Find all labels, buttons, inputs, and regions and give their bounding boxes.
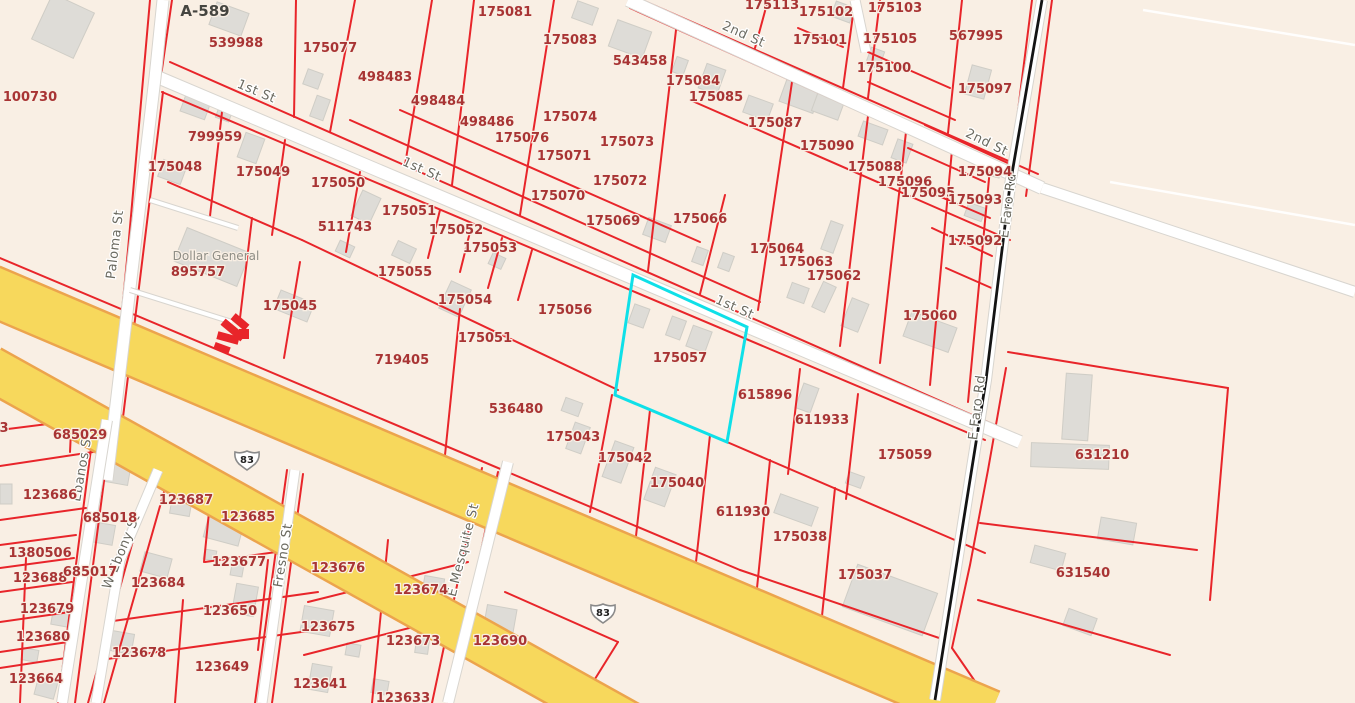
parcel-label[interactable]: 175053 <box>463 241 517 256</box>
parcel-label[interactable]: 175042 <box>598 451 652 466</box>
parcel-label[interactable]: 175073 <box>600 135 654 150</box>
parcel-label[interactable]: 611933 <box>795 413 849 428</box>
parcel-label[interactable]: 175113 <box>745 0 799 13</box>
parcel-label[interactable]: 175100 <box>857 61 911 76</box>
parcel-label[interactable]: 175069 <box>586 214 640 229</box>
parcel-label[interactable]: 123679 <box>20 602 74 617</box>
parcel-label[interactable]: 175077 <box>303 41 357 56</box>
parcel-label[interactable]: 123677 <box>212 555 266 570</box>
label-a-589: A-589 <box>180 2 229 20</box>
parcel-label[interactable]: 498483 <box>358 70 412 85</box>
label-dollar-general: Dollar General <box>173 249 260 263</box>
parcel-label[interactable]: 175063 <box>779 255 833 270</box>
parcel-label[interactable]: 123687 <box>159 493 213 508</box>
building-footprint <box>21 648 39 663</box>
parcel-label[interactable]: 123650 <box>203 604 257 619</box>
parcel-label[interactable]: 175040 <box>650 476 704 491</box>
shield-number: 83 <box>240 455 254 466</box>
parcel-label[interactable]: 685029 <box>53 428 107 443</box>
parcel-label[interactable]: 123686 <box>23 488 77 503</box>
parcel-label[interactable]: 685018 <box>83 511 137 526</box>
parcel-label[interactable]: 175060 <box>903 309 957 324</box>
parcel-label[interactable]: 175055 <box>378 265 432 280</box>
parcel-label[interactable]: 175045 <box>263 299 317 314</box>
parcel-label[interactable]: 123664 <box>9 672 63 687</box>
parcel-label[interactable]: 3 <box>0 421 9 436</box>
parcel-label[interactable]: 175090 <box>800 139 854 154</box>
parcel-label[interactable]: 631210 <box>1075 448 1129 463</box>
parcel-label[interactable]: 123675 <box>301 620 355 635</box>
parcel-label[interactable]: 175051 <box>458 331 512 346</box>
parcel-label[interactable]: 123684 <box>131 576 185 591</box>
parcel-label[interactable]: 175092 <box>948 234 1002 249</box>
parcel-label[interactable]: 175097 <box>958 82 1012 97</box>
parcel-label[interactable]: 175050 <box>311 176 365 191</box>
parcel-label[interactable]: 123690 <box>473 634 527 649</box>
building-footprint <box>0 484 12 504</box>
shield-number: 83 <box>596 608 610 619</box>
parcel-label[interactable]: 615896 <box>738 388 792 403</box>
parcel-label[interactable]: 175093 <box>948 193 1002 208</box>
parcel-label[interactable]: 175052 <box>429 223 483 238</box>
parcel-label[interactable]: 123680 <box>16 630 70 645</box>
parcel-label[interactable]: 175074 <box>543 110 597 125</box>
building-footprint <box>1062 373 1093 441</box>
parcel-label[interactable]: 175081 <box>478 5 532 20</box>
parcel-label[interactable]: 123676 <box>311 561 365 576</box>
parcel-label[interactable]: 175102 <box>799 5 853 20</box>
red-annotation-mark <box>239 329 249 339</box>
parcel-label[interactable]: 539988 <box>209 36 263 51</box>
parcel-label[interactable]: 175049 <box>236 165 290 180</box>
parcel-label[interactable]: 175101 <box>793 33 847 48</box>
parcel-label[interactable]: 175054 <box>438 293 492 308</box>
parcel-label[interactable]: 498484 <box>411 94 465 109</box>
parcel-label[interactable]: 175062 <box>807 269 861 284</box>
parcel-label[interactable]: 175072 <box>593 174 647 189</box>
parcel-label[interactable]: 175105 <box>863 32 917 47</box>
parcel-label[interactable]: 123633 <box>376 691 430 703</box>
parcel-label[interactable]: 611930 <box>716 505 770 520</box>
parcel-label[interactable]: 123641 <box>293 677 347 692</box>
parcel-label[interactable]: 175094 <box>958 165 1012 180</box>
parcel-label[interactable]: 123649 <box>195 660 249 675</box>
parcel-label[interactable]: 175066 <box>673 212 727 227</box>
parcel-label[interactable]: 175076 <box>495 131 549 146</box>
parcel-label[interactable]: 175087 <box>748 116 802 131</box>
parcel-label[interactable]: 175088 <box>848 160 902 175</box>
map-canvas[interactable]: 83831st St1st St1st St2nd St2nd StPaloma… <box>0 0 1355 703</box>
parcel-label[interactable]: 685017 <box>63 565 117 580</box>
parcel-label[interactable]: 175051 <box>382 204 436 219</box>
parcel-label[interactable]: 567995 <box>949 29 1003 44</box>
parcel-label[interactable]: 895757 <box>171 265 225 280</box>
parcel-label[interactable]: 175084 <box>666 74 720 89</box>
building-footprint <box>345 643 361 657</box>
parcel-label[interactable]: 175056 <box>538 303 592 318</box>
parcel-label[interactable]: 799959 <box>188 130 242 145</box>
parcel-label[interactable]: 175059 <box>878 448 932 463</box>
parcel-label[interactable]: 175038 <box>773 530 827 545</box>
parcel-label[interactable]: 123685 <box>221 510 275 525</box>
parcel-label[interactable]: 123688 <box>13 571 67 586</box>
parcel-label[interactable]: 175071 <box>537 149 591 164</box>
parcel-label[interactable]: 123678 <box>112 646 166 661</box>
parcel-label[interactable]: 1380506 <box>8 546 71 561</box>
parcel-label[interactable]: 175083 <box>543 33 597 48</box>
parcel-label[interactable]: 511743 <box>318 220 372 235</box>
parcel-label[interactable]: 175043 <box>546 430 600 445</box>
parcel-label[interactable]: 543458 <box>613 54 667 69</box>
parcel-label[interactable]: 100730 <box>3 90 57 105</box>
parcel-label[interactable]: 536480 <box>489 402 543 417</box>
parcel-label[interactable]: 175085 <box>689 90 743 105</box>
parcel-label[interactable]: 498486 <box>460 115 514 130</box>
parcel-label[interactable]: 175103 <box>868 1 922 16</box>
parcel-label[interactable]: 175037 <box>838 568 892 583</box>
parcel-label[interactable]: 175057 <box>653 351 707 366</box>
parcel-label[interactable]: 175070 <box>531 189 585 204</box>
parcel-label[interactable]: 631540 <box>1056 566 1110 581</box>
parcel-label[interactable]: 123673 <box>386 634 440 649</box>
parcel-label[interactable]: 123674 <box>394 583 448 598</box>
parcel-label[interactable]: 719405 <box>375 353 429 368</box>
parcel-label[interactable]: 175048 <box>148 160 202 175</box>
